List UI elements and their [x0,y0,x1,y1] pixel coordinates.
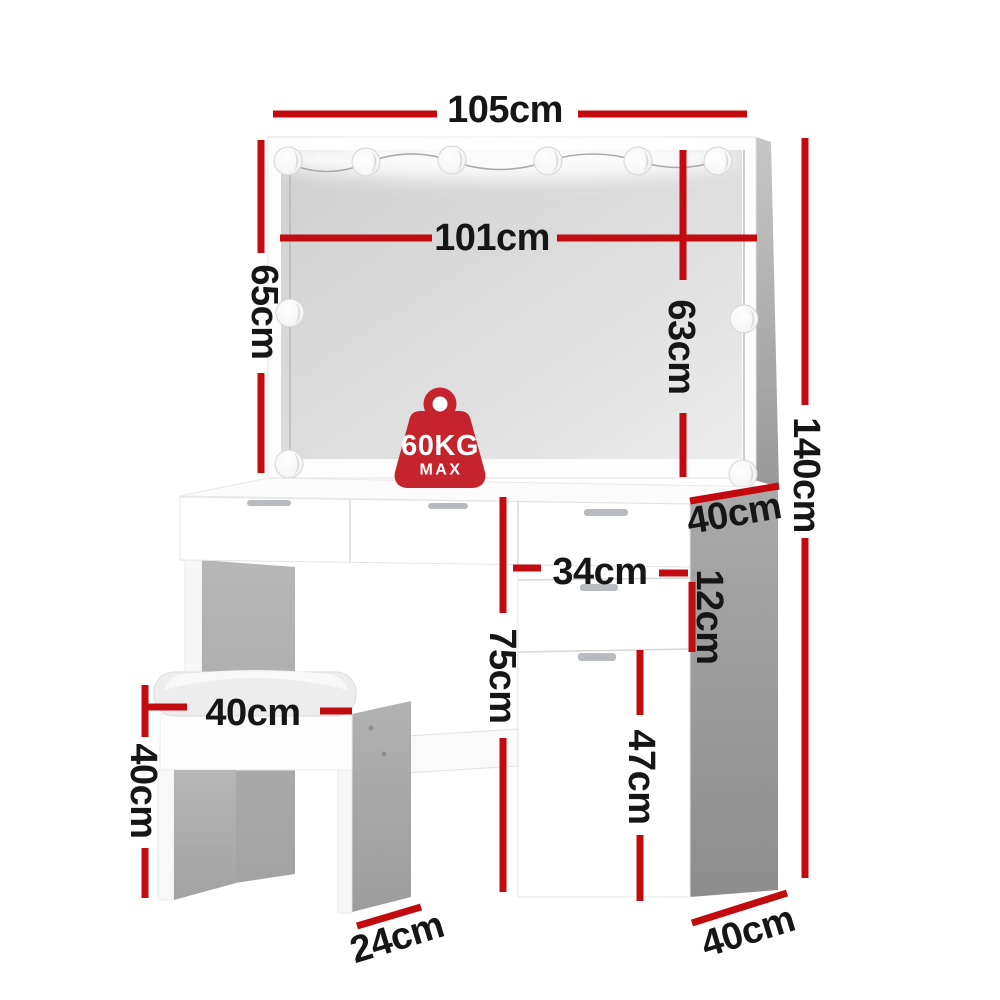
screw [382,752,387,757]
dim-label-drawer-height: 12cm [688,569,730,664]
drawer-handle [584,509,628,516]
cabinet-door-handle [578,653,616,661]
product-dimension-diagram: 60KG MAX 105cm 101cm 65cm 63cm 140cm [0,0,1000,1000]
stool-left-leg-side [174,770,236,900]
dim-label-total-height: 140cm [785,417,827,533]
stool-side-panel [352,701,411,912]
weight-limit-value: 60KG [401,430,479,462]
dim-label-mirror-height-right: 63cm [660,299,702,394]
led-bulb [275,450,303,478]
led-bulb [534,147,562,175]
dressing-table-diagram: 60KG MAX 105cm 101cm 65cm 63cm 140cm [0,0,1000,1000]
drawer-handle [247,500,291,506]
led-bulb [438,146,466,174]
dim-label-drawer-width: 34cm [552,551,647,593]
weight-limit-qualifier: MAX [419,462,462,479]
dim-label-top-width: 105cm [447,89,563,131]
dim-label-door-height: 47cm [620,729,662,824]
dim-label-mirror-width: 101cm [434,217,550,259]
led-bulb [730,305,758,333]
dim-label-mirror-height-left: 65cm [243,264,285,359]
dim-label-stool-height: 40cm [122,743,164,838]
stool-right-leg [338,770,352,913]
kettlebell-icon-hole [433,397,448,412]
led-bulb [274,147,302,175]
led-bulb [729,460,757,488]
cabinet-side-panel [690,488,778,897]
led-bulb [352,148,380,176]
screw [369,726,374,731]
led-bulb [704,147,732,175]
dim-label-stool-width: 40cm [205,692,300,734]
cabinet-front [518,565,690,897]
led-glow [265,136,741,180]
led-bulb [624,147,652,175]
drawer-handle [428,503,468,509]
dim-label-table-height: 75cm [481,628,523,723]
